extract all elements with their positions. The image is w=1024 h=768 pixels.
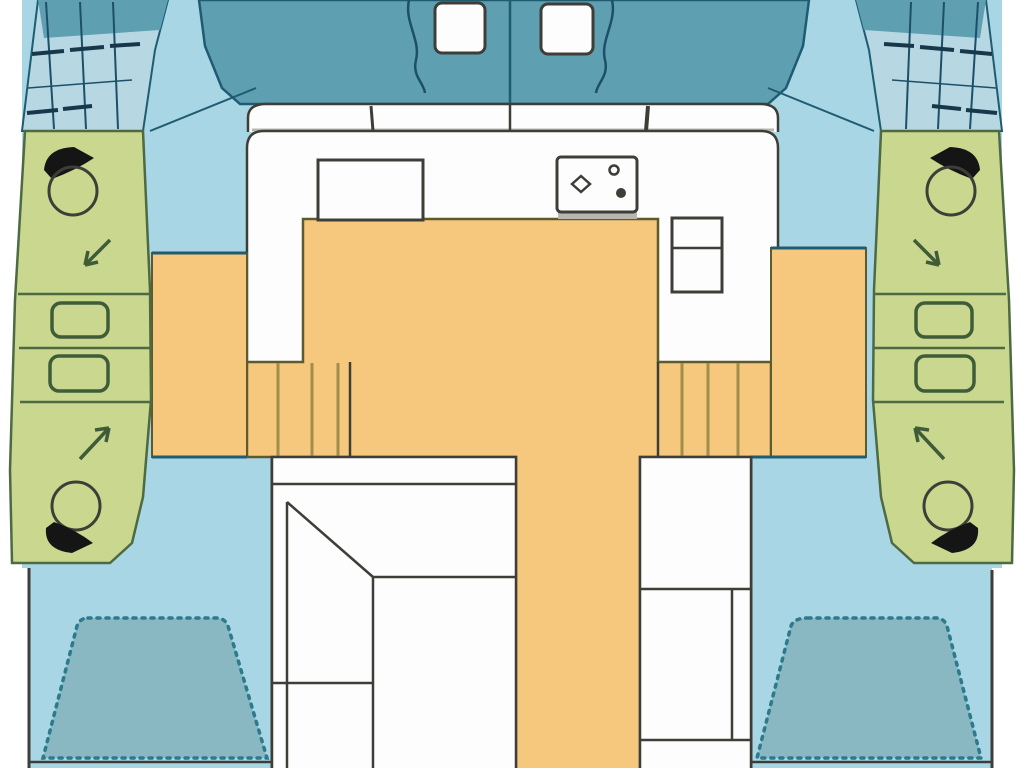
hull-corridor-left xyxy=(152,253,247,457)
hatch-left xyxy=(435,3,485,53)
band-tick-left xyxy=(371,106,373,131)
hull-corridor-right xyxy=(771,248,866,457)
aft-seat-area xyxy=(640,457,751,768)
catamaran-floorplan xyxy=(0,0,1024,768)
stove xyxy=(557,157,637,212)
bed-right xyxy=(757,618,981,758)
catamaran-floorplan-svg xyxy=(0,0,1024,768)
dinette-area xyxy=(272,457,516,768)
coachroof-band xyxy=(248,104,778,132)
forward-cockpit xyxy=(199,0,809,104)
band-tick-right xyxy=(646,106,648,131)
hatch-right xyxy=(541,4,593,54)
galley-counter xyxy=(318,160,423,220)
fridge xyxy=(672,218,722,292)
stove-burner-knob xyxy=(616,188,626,198)
